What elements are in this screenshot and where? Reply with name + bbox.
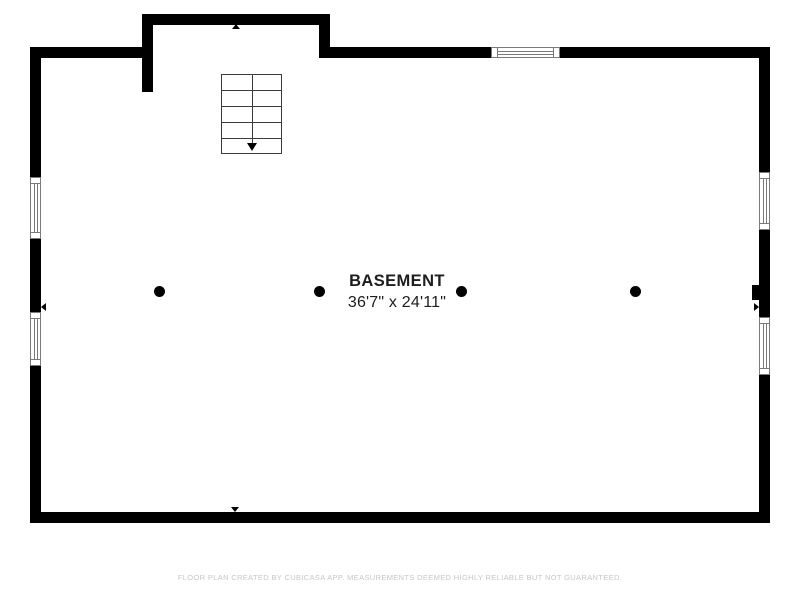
window-right-upper (759, 172, 770, 230)
window-top-wall (491, 47, 560, 58)
footer-disclaimer: FLOOR PLAN CREATED BY CUBICASA APP. MEAS… (0, 573, 800, 582)
wall-top-left-segment (30, 47, 153, 58)
window-glass-line (34, 319, 38, 359)
measure-marker-bottom-icon (231, 507, 239, 512)
window-frame-tick (31, 232, 40, 233)
measure-marker-right-icon (754, 303, 759, 311)
room-label: BASEMENT 36'7" x 24'11" (297, 272, 497, 312)
room-dimensions: 36'7" x 24'11" (297, 294, 497, 312)
window-glass-line (763, 324, 767, 368)
room-name: BASEMENT (297, 272, 497, 291)
staircase (221, 74, 282, 154)
window-glass-line (498, 51, 553, 55)
measure-marker-top-icon (232, 24, 240, 29)
measure-marker-left-icon (41, 303, 46, 311)
window-frame-tick (760, 368, 769, 369)
window-right-lower (759, 317, 770, 375)
wall-projection-right (752, 285, 760, 300)
stairs-down-arrow-icon (247, 143, 257, 151)
window-left-lower (30, 312, 41, 366)
support-column-dot (154, 286, 165, 297)
wall-bottom (30, 512, 770, 523)
window-frame-tick (553, 48, 554, 57)
window-frame-tick (31, 359, 40, 360)
window-glass-line (34, 184, 38, 232)
stair-center-line (252, 75, 253, 144)
floor-plan-canvas: BASEMENT 36'7" x 24'11" FLOOR PLAN CREAT… (0, 0, 800, 600)
wall-right (759, 47, 770, 523)
window-glass-line (763, 179, 767, 223)
window-frame-tick (760, 223, 769, 224)
wall-notch-left (142, 14, 153, 92)
support-column-dot (630, 286, 641, 297)
wall-left (30, 47, 41, 523)
window-left-upper (30, 177, 41, 239)
